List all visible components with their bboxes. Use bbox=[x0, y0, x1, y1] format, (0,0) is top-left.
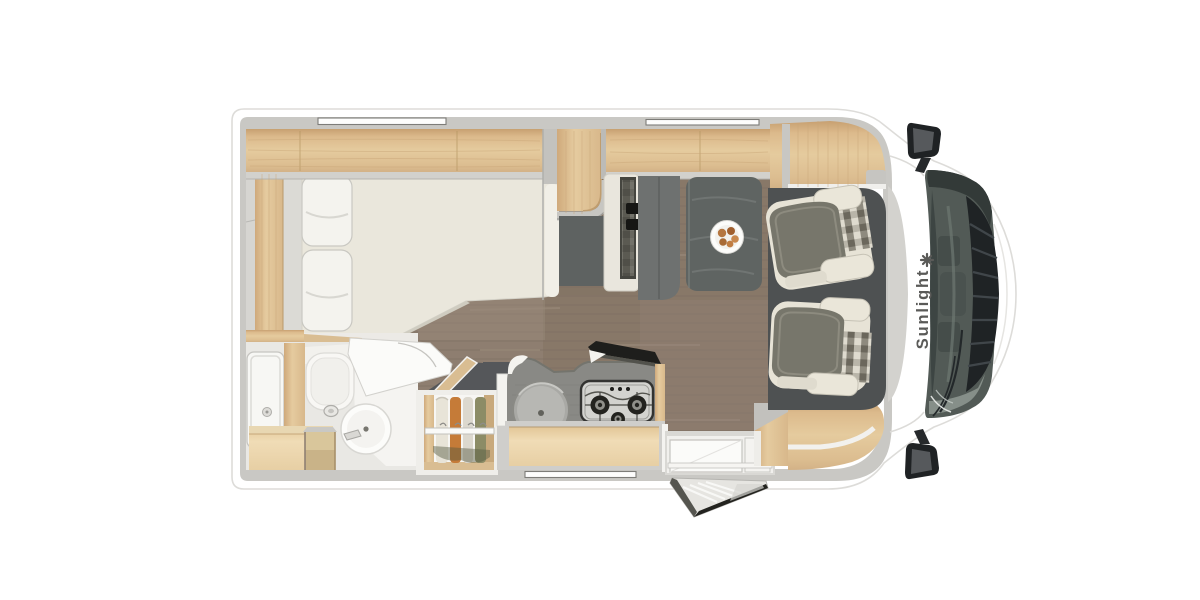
svg-text:Sunlight: Sunlight bbox=[914, 269, 932, 349]
